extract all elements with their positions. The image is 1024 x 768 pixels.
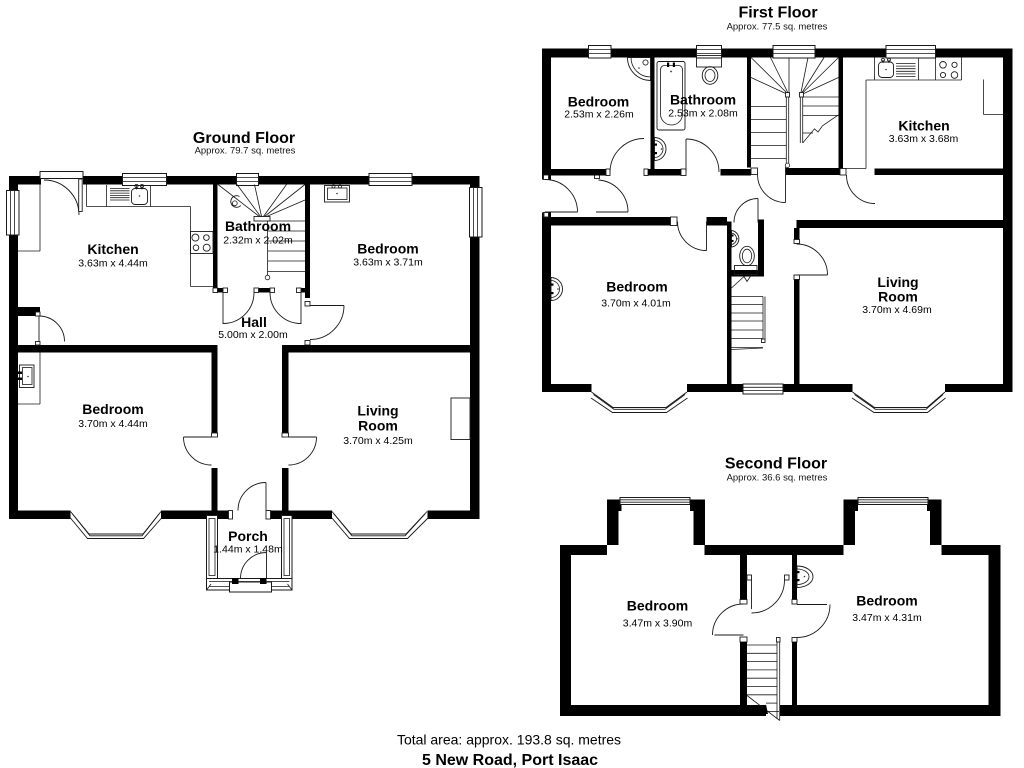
svg-text:Bedroom: Bedroom [568,94,629,110]
svg-text:2.32m x 2.02m: 2.32m x 2.02m [223,235,293,247]
svg-text:Bedroom: Bedroom [606,279,667,295]
svg-text:Total area: approx. 193.8 sq.: Total area: approx. 193.8 sq. metres [397,732,621,748]
svg-text:3.63m x 4.44m: 3.63m x 4.44m [78,258,148,270]
svg-text:2.53m x 2.08m: 2.53m x 2.08m [668,108,738,120]
svg-text:Living: Living [357,403,398,419]
svg-text:Approx. 77.5 sq. metres: Approx. 77.5 sq. metres [727,22,828,33]
svg-text:Hall: Hall [241,314,267,330]
svg-text:Bathroom: Bathroom [225,218,291,234]
svg-text:3.70m x 4.44m: 3.70m x 4.44m [78,418,148,430]
svg-text:3.47m x 3.90m: 3.47m x 3.90m [623,618,693,630]
svg-text:3.47m x 4.31m: 3.47m x 4.31m [852,612,922,624]
svg-text:Approx. 36.6 sq. metres: Approx. 36.6 sq. metres [727,473,828,484]
svg-text:1.44m x 1.48m: 1.44m x 1.48m [213,544,283,556]
svg-text:5 New Road, Port Isaac: 5 New Road, Port Isaac [422,752,598,768]
svg-text:Bedroom: Bedroom [627,598,688,614]
svg-text:Bathroom: Bathroom [670,92,736,108]
svg-text:3.70m x 4.25m: 3.70m x 4.25m [343,435,413,447]
svg-text:3.70m x 4.69m: 3.70m x 4.69m [862,304,932,316]
svg-text:Porch: Porch [228,528,268,544]
svg-text:2.53m x 2.26m: 2.53m x 2.26m [564,109,634,121]
svg-text:Bedroom: Bedroom [82,401,143,417]
svg-text:3.63m x 3.71m: 3.63m x 3.71m [353,257,423,269]
svg-text:Kitchen: Kitchen [898,118,949,134]
svg-text:Room: Room [878,289,918,305]
svg-text:3.70m x 4.01m: 3.70m x 4.01m [601,298,671,310]
svg-text:Room: Room [358,418,398,434]
svg-text:Ground Floor: Ground Floor [193,130,295,147]
svg-text:First Floor: First Floor [738,5,817,22]
svg-text:5.00m x 2.00m: 5.00m x 2.00m [218,329,288,341]
svg-text:Bedroom: Bedroom [357,241,418,257]
svg-text:Second Floor: Second Floor [725,456,827,473]
svg-text:Approx. 79.7 sq. metres: Approx. 79.7 sq. metres [195,146,296,157]
svg-text:Kitchen: Kitchen [87,241,138,257]
svg-text:Bedroom: Bedroom [856,593,917,609]
svg-text:3.63m x 3.68m: 3.63m x 3.68m [889,133,959,145]
